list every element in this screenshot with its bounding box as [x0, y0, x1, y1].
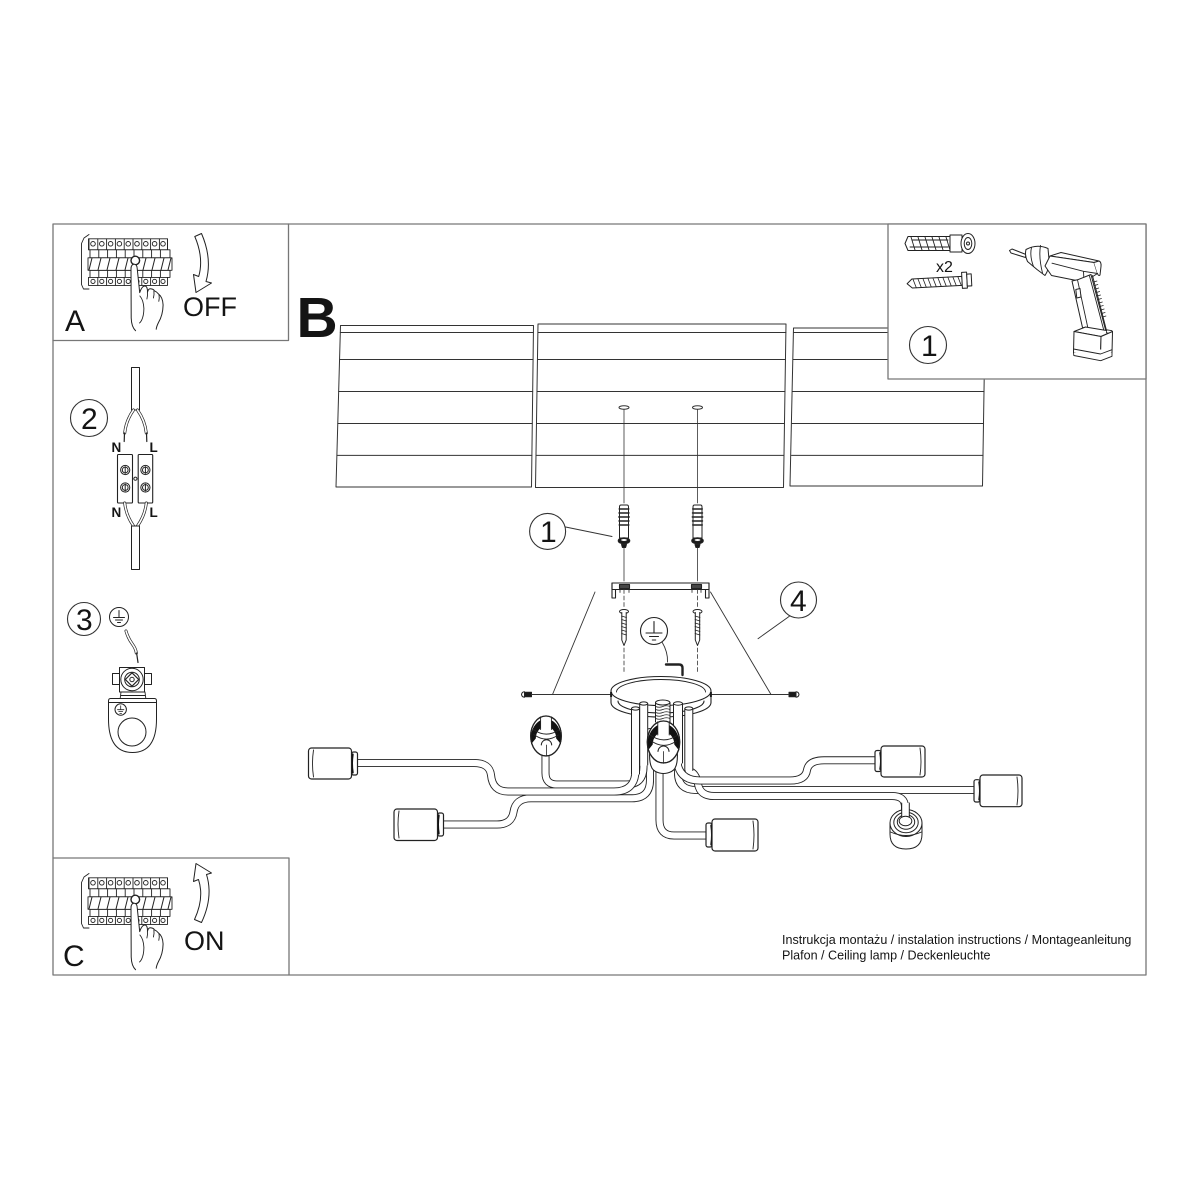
svg-text:OFF: OFF — [183, 292, 237, 322]
svg-text:3: 3 — [76, 604, 93, 637]
svg-text:ON: ON — [184, 926, 225, 956]
svg-text:N: N — [112, 440, 122, 455]
svg-text:C: C — [63, 940, 85, 973]
svg-text:Plafon / Ceiling lamp / Decken: Plafon / Ceiling lamp / Deckenleuchte — [782, 949, 991, 963]
svg-text:2: 2 — [81, 403, 98, 436]
svg-text:L: L — [150, 440, 158, 455]
svg-text:x2: x2 — [936, 259, 953, 276]
svg-text:4: 4 — [790, 585, 807, 618]
svg-text:A: A — [65, 305, 85, 338]
svg-text:L: L — [150, 505, 158, 520]
svg-text:Instrukcja montażu / instalati: Instrukcja montażu / instalation instruc… — [782, 933, 1131, 947]
svg-text:N: N — [112, 505, 122, 520]
svg-text:B: B — [297, 286, 338, 350]
svg-text:1: 1 — [921, 330, 938, 363]
svg-text:1: 1 — [540, 516, 557, 549]
